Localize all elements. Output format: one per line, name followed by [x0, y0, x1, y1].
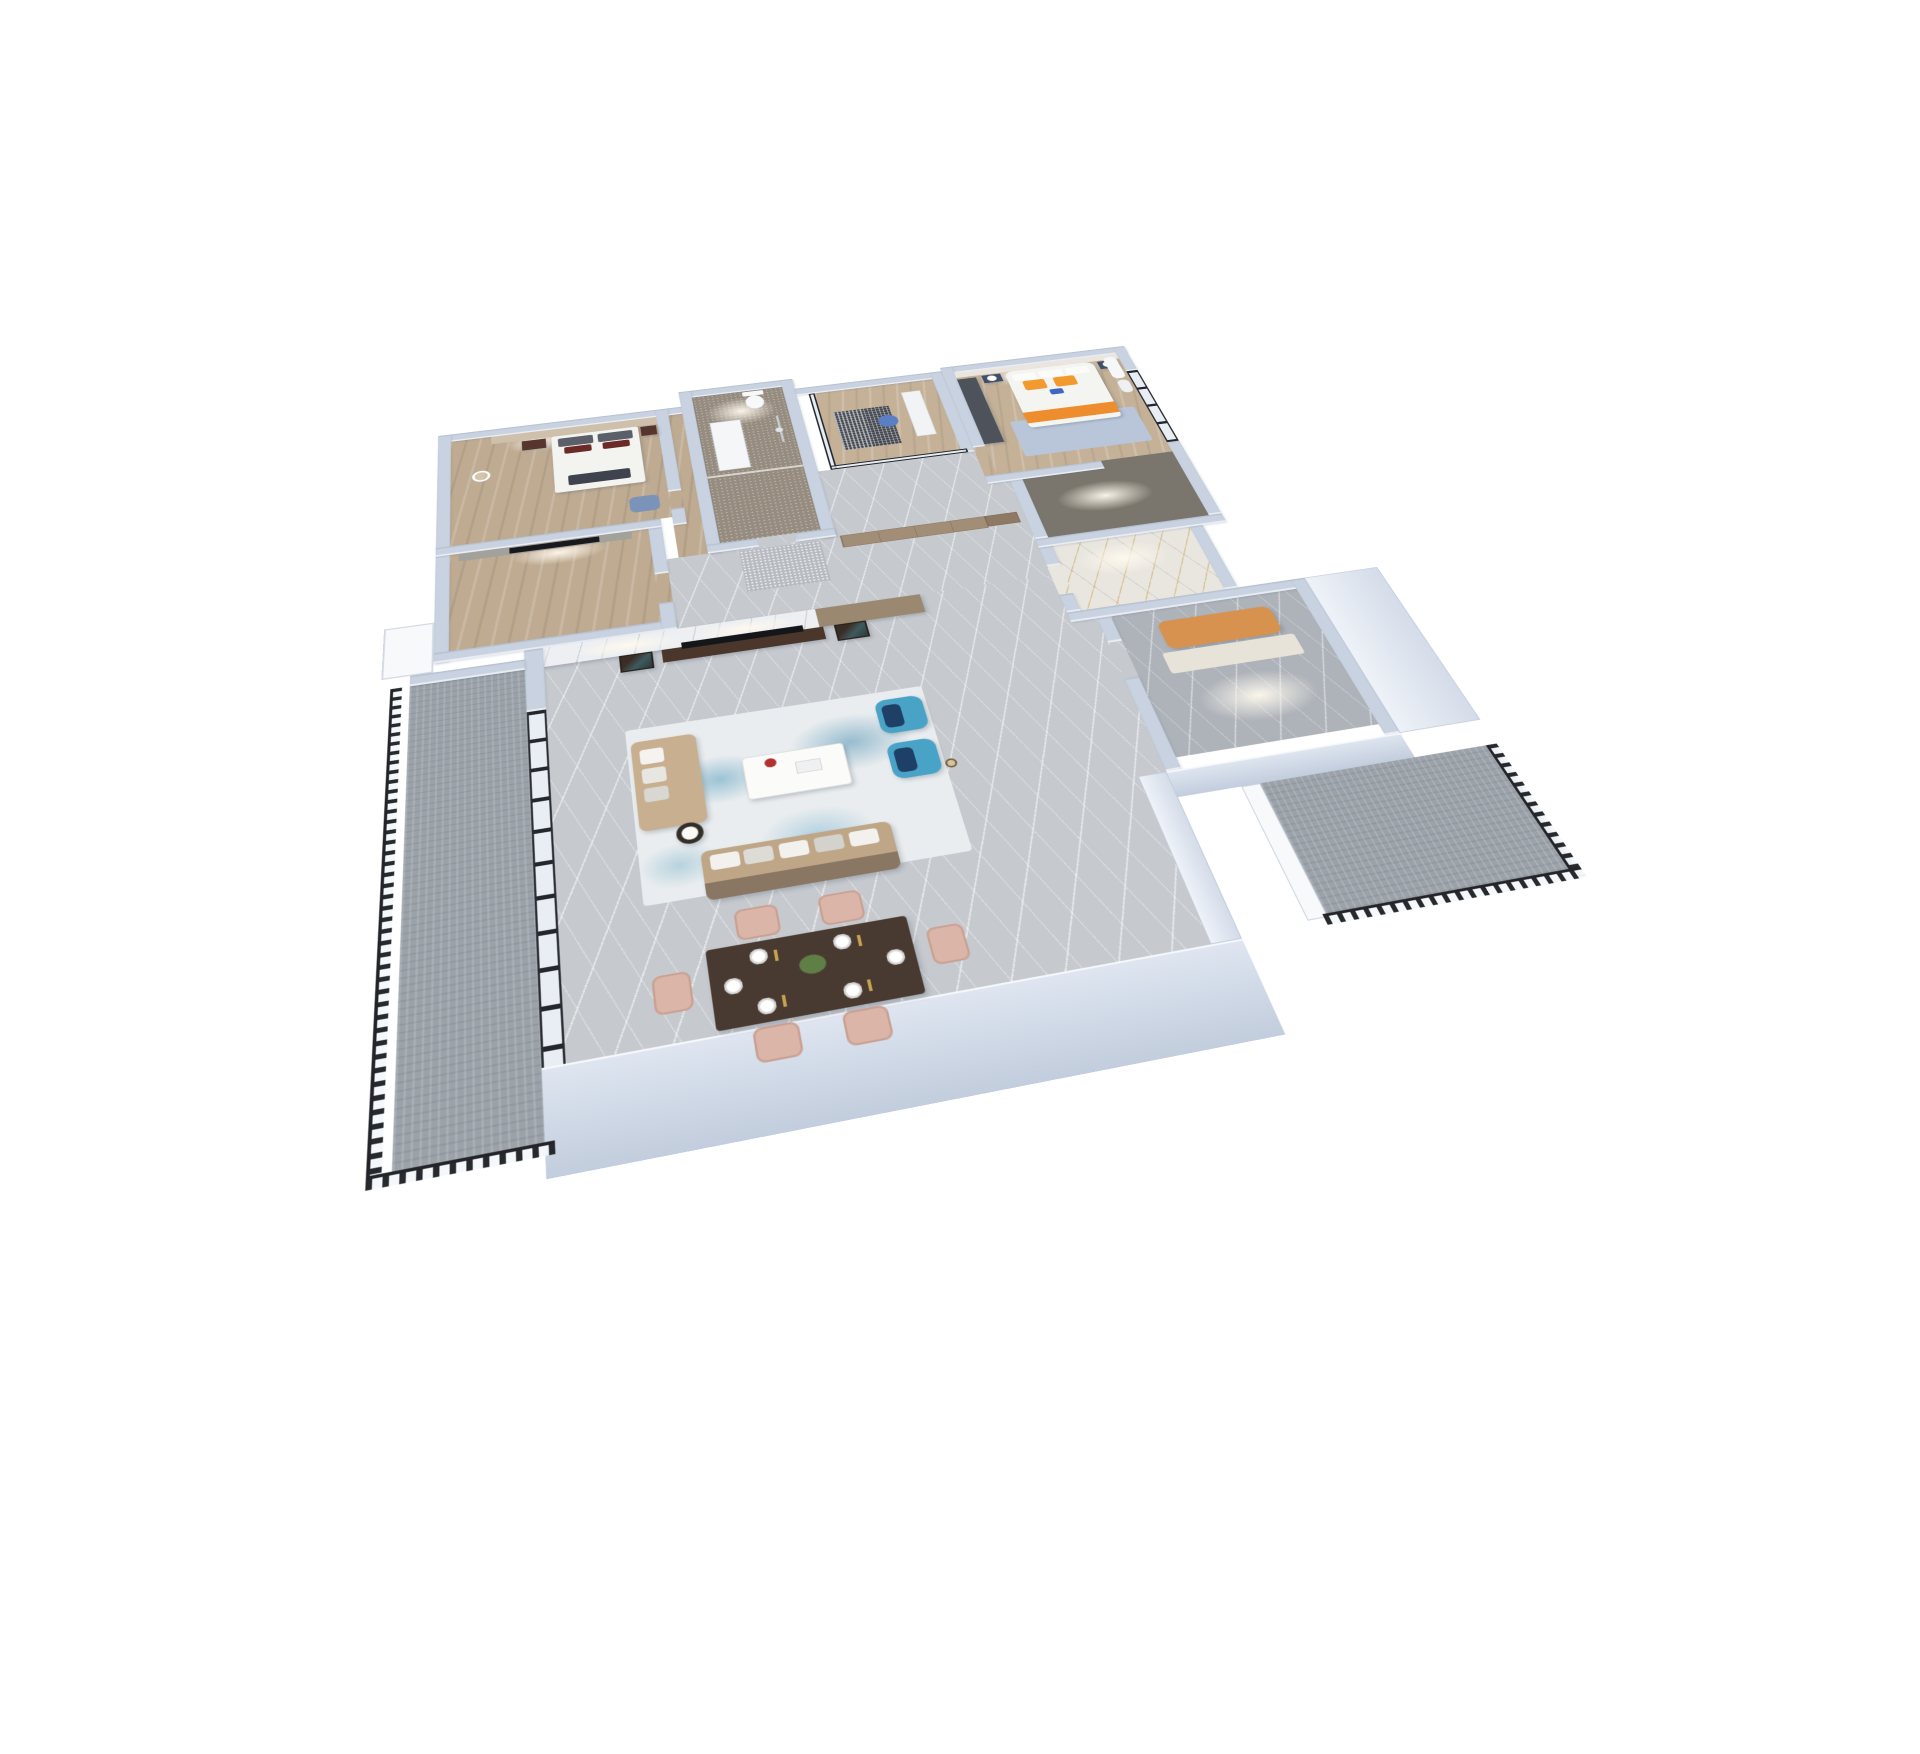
balcony-floor: [392, 670, 545, 1174]
floor-plan: [354, 313, 1619, 1158]
master-door-floor: [668, 490, 684, 509]
floorplan-3d-scene: [354, 313, 1619, 1158]
wall-master-west: [436, 434, 451, 556]
wall-living-west-cap: [524, 648, 546, 712]
loveseat: [630, 733, 708, 832]
wall-master-east-cap: [671, 507, 687, 525]
dining-chair-w: [651, 971, 694, 1017]
master-nightstand-right: [640, 425, 657, 436]
wall-media-west: [433, 555, 449, 664]
page-background: [0, 0, 1920, 1754]
nw-ledge: [381, 623, 434, 681]
